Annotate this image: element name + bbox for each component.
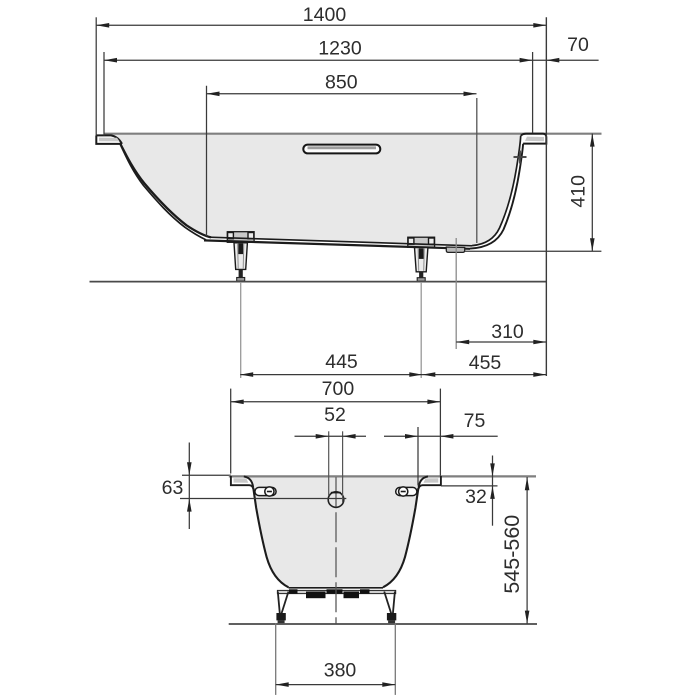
svg-text:545-560: 545-560 xyxy=(500,515,524,594)
svg-text:1400: 1400 xyxy=(303,4,347,26)
svg-text:32: 32 xyxy=(465,486,487,508)
svg-text:445: 445 xyxy=(325,351,358,373)
svg-text:1230: 1230 xyxy=(318,37,362,59)
svg-text:455: 455 xyxy=(469,352,502,374)
svg-text:850: 850 xyxy=(325,71,358,93)
svg-text:52: 52 xyxy=(324,404,346,426)
svg-text:75: 75 xyxy=(464,410,486,432)
svg-text:63: 63 xyxy=(162,477,184,499)
svg-text:410: 410 xyxy=(568,175,590,208)
svg-text:310: 310 xyxy=(491,321,524,343)
svg-text:380: 380 xyxy=(324,659,357,681)
svg-text:70: 70 xyxy=(567,34,589,56)
svg-text:700: 700 xyxy=(322,378,355,400)
